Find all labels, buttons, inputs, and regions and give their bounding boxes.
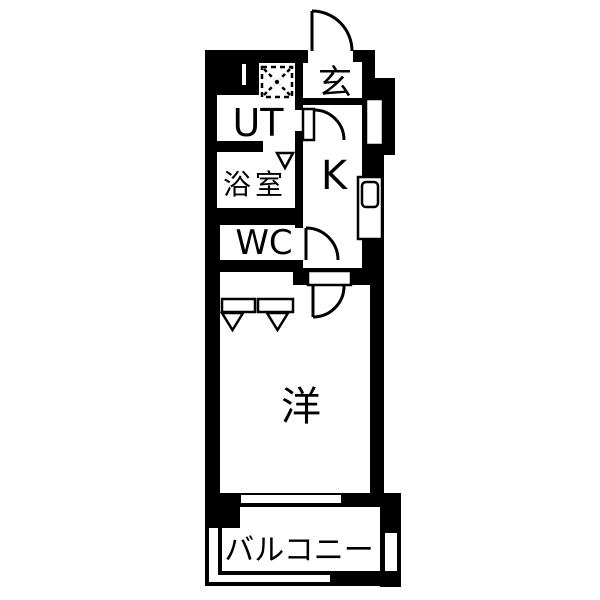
entrance-doorway-opening [308, 50, 353, 62]
shoe-cabinet [366, 99, 383, 145]
label-entrance: 玄 [318, 63, 352, 103]
closet-door-panel-left [222, 299, 255, 312]
window-opening [241, 495, 341, 503]
western-room-doorway [308, 271, 351, 285]
wall-joint-tick [242, 64, 246, 85]
floor-plan: 玄 UT 浴室 WC K 洋 バルコニー [0, 0, 600, 600]
wall-inner-column-a [295, 50, 303, 110]
label-toilet: WC [235, 223, 292, 263]
closet-door-panel-right [258, 299, 293, 312]
label-bathroom: 浴室 [223, 168, 287, 201]
toilet-floor-notch [220, 249, 232, 260]
label-kitchen: K [321, 153, 349, 199]
toilet-doorway-opening [295, 228, 303, 260]
floor-plan-drawing: 玄 UT 浴室 WC K 洋 バルコニー [0, 0, 600, 600]
wall-bottomright-band [330, 571, 401, 586]
label-western-room: 洋 [281, 384, 321, 430]
entrance-door-icon [312, 11, 352, 51]
wall-bottomleft-block [205, 493, 240, 528]
entrance-door-arc [312, 11, 352, 51]
label-balcony: バルコニー [224, 533, 373, 568]
kitchen-sink [362, 182, 378, 207]
balcony-right-gap [385, 533, 397, 571]
utility-door-leaf [303, 109, 314, 140]
washing-machine-dot [275, 80, 279, 84]
label-utility: UT [232, 101, 284, 145]
